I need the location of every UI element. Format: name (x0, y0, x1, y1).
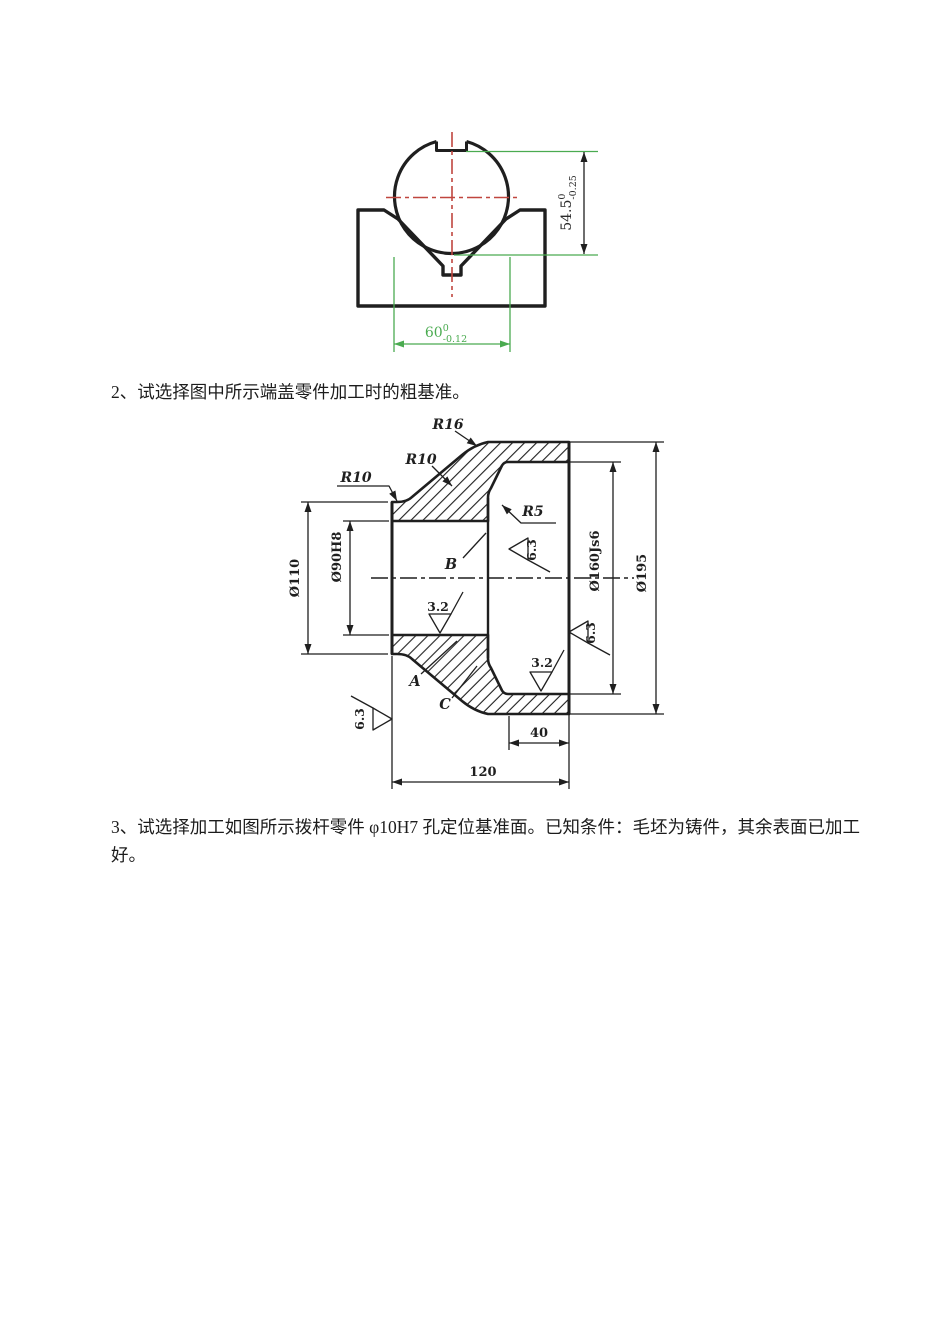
leader-arrow-r10-left (389, 491, 397, 502)
arrow-d110-top (305, 502, 312, 512)
label-c: C (439, 696, 451, 713)
roughness-text-recess-face: 6.3 (524, 539, 539, 561)
width-dim-arrow-right (500, 341, 510, 348)
end-cover-drawing: Ø110 Ø90H8 Ø160Js6 Ø195 40 120 (288, 417, 664, 789)
dim-text-d195: Ø195 (635, 554, 650, 592)
arrow-d195-bottom (653, 704, 660, 714)
arrow-40-right (559, 740, 569, 747)
dim-text-40: 40 (530, 726, 548, 741)
arrow-d110-bottom (305, 644, 312, 654)
arrow-40-left (509, 740, 519, 747)
label-r10-upper: R10 (404, 452, 436, 468)
arrow-120-left (392, 779, 402, 786)
v-block-drawing: 54.50-0.25 600-0.12 (358, 132, 598, 352)
height-dim-arrow-top (581, 152, 588, 162)
height-dim-arrow-bottom (581, 244, 588, 254)
arrow-120-right (559, 779, 569, 786)
dim-text-120: 120 (469, 765, 496, 780)
leader-b (463, 533, 486, 558)
arrow-d160-top (610, 462, 617, 472)
height-dim-text: 54.50-0.25 (557, 175, 579, 231)
arrow-d90-top (347, 521, 354, 531)
engineering-drawings-canvas: 54.50-0.25 600-0.12 (0, 0, 950, 1344)
arrow-d195-top (653, 442, 660, 452)
leader-arrow-r16 (467, 438, 477, 447)
width-dim-text: 600-0.12 (425, 323, 467, 345)
label-r10-left: R10 (339, 470, 371, 486)
roughness-text-front-face: 6.3 (583, 622, 598, 644)
document-page: 2、试选择图中所示端盖零件加工时的粗基准。 3、试选择加工如图所示拨杆零件 φ1… (0, 0, 950, 1344)
roughness-text-spigot: 3.2 (531, 655, 553, 670)
label-b: B (444, 556, 457, 573)
arrow-d90-bottom (347, 625, 354, 635)
arrow-d160-bottom (610, 684, 617, 694)
dim-text-d110: Ø110 (288, 559, 303, 597)
dim-text-d160: Ø160Js6 (588, 531, 603, 592)
label-r5: R5 (521, 504, 543, 520)
label-r16: R16 (431, 417, 463, 433)
label-a: A (407, 673, 420, 690)
roughness-text-left-face: 6.3 (352, 708, 367, 730)
roughness-text-bore: 3.2 (427, 599, 449, 614)
leader-r10-left (337, 486, 397, 501)
dim-text-d90: Ø90H8 (330, 532, 345, 583)
width-dim-arrow-left (394, 341, 404, 348)
